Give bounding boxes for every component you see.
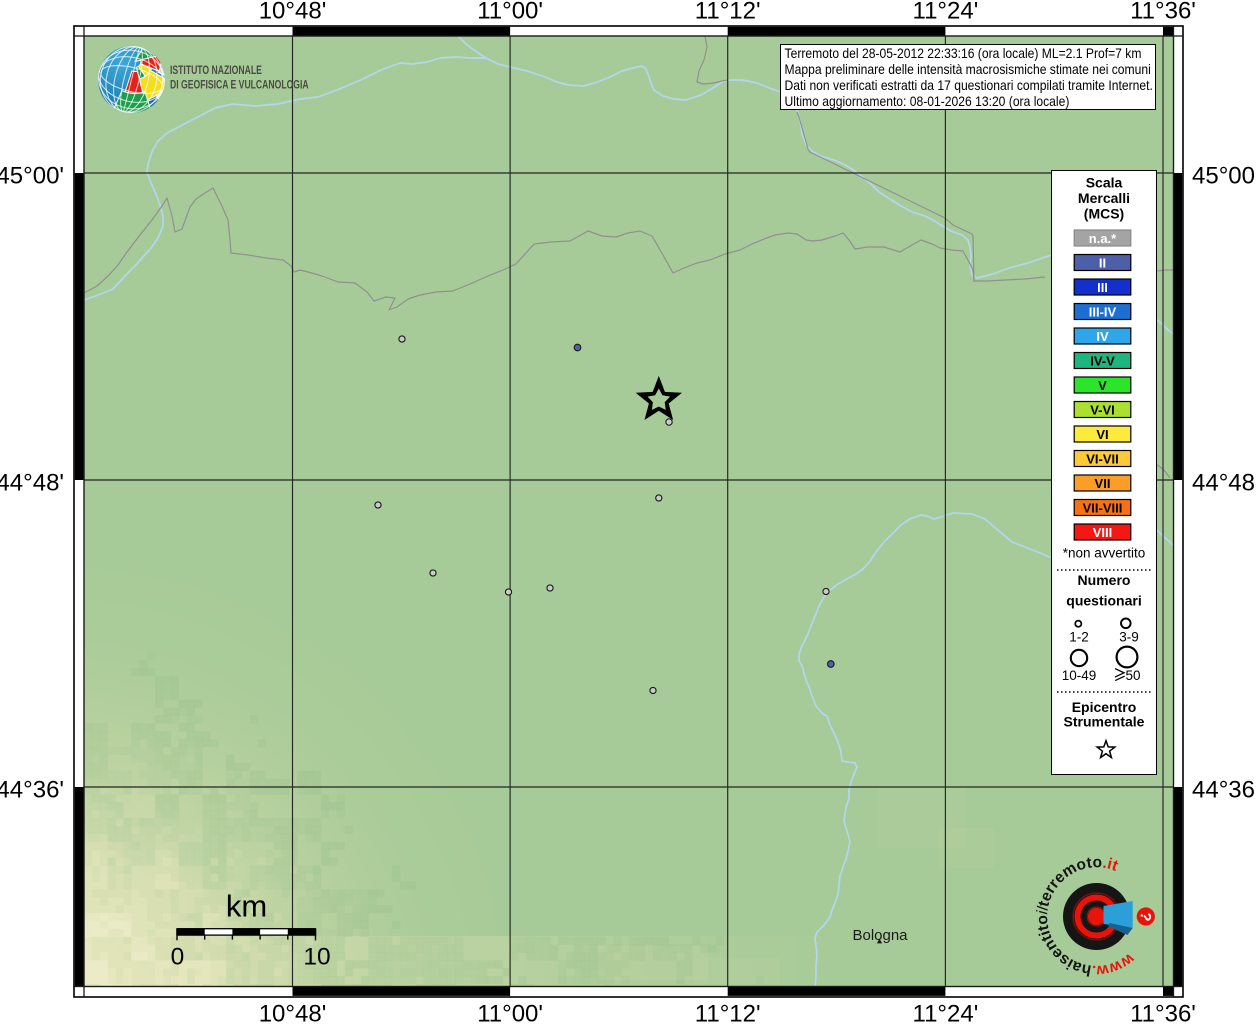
svg-text:(MCS): (MCS) bbox=[1084, 206, 1124, 222]
svg-text:VIII: VIII bbox=[1093, 525, 1113, 540]
svg-text:10-49: 10-49 bbox=[1062, 668, 1097, 683]
svg-text:11°12': 11°12' bbox=[695, 1001, 761, 1024]
svg-text:10°48': 10°48' bbox=[259, 0, 327, 25]
svg-text:11°24': 11°24' bbox=[913, 0, 979, 25]
svg-text:11°36': 11°36' bbox=[1130, 0, 1196, 25]
svg-text:II: II bbox=[1099, 255, 1106, 270]
svg-text:44°36': 44°36' bbox=[0, 777, 64, 804]
svg-text:Scala: Scala bbox=[1086, 175, 1123, 191]
svg-text:1-2: 1-2 bbox=[1069, 630, 1089, 645]
svg-text:IV-V: IV-V bbox=[1090, 353, 1115, 368]
svg-text:VI-VII: VI-VII bbox=[1086, 451, 1119, 466]
svg-text:Numero: Numero bbox=[1078, 572, 1131, 588]
svg-text:11°00': 11°00' bbox=[477, 0, 543, 25]
svg-text:44°48': 44°48' bbox=[1192, 470, 1256, 497]
svg-text:10: 10 bbox=[303, 944, 330, 971]
svg-text:45°00': 45°00' bbox=[0, 163, 64, 190]
svg-text:DI GEOFISICA E VULCANOLOGIA: DI GEOFISICA E VULCANOLOGIA bbox=[170, 80, 309, 93]
svg-text:0: 0 bbox=[171, 944, 185, 971]
svg-text:11°36': 11°36' bbox=[1130, 1001, 1196, 1024]
svg-text:km: km bbox=[226, 889, 267, 924]
svg-text:11°24': 11°24' bbox=[913, 1001, 979, 1024]
svg-text:11°12': 11°12' bbox=[695, 0, 761, 25]
svg-text:III-IV: III-IV bbox=[1089, 304, 1117, 319]
svg-text:*non avvertito: *non avvertito bbox=[1063, 546, 1146, 561]
svg-text:ISTITUTO NAZIONALE: ISTITUTO NAZIONALE bbox=[170, 65, 262, 78]
svg-text:n.a.*: n.a.* bbox=[1089, 231, 1117, 246]
svg-text:Mercalli: Mercalli bbox=[1078, 190, 1130, 206]
svg-text:10°48': 10°48' bbox=[259, 1001, 327, 1024]
svg-text:Strumentale: Strumentale bbox=[1064, 714, 1145, 730]
svg-text:V-VI: V-VI bbox=[1090, 402, 1115, 417]
svg-text:3-9: 3-9 bbox=[1119, 630, 1139, 645]
svg-text:44°36': 44°36' bbox=[1192, 777, 1256, 804]
svg-text:VII-VIII: VII-VIII bbox=[1083, 500, 1123, 515]
svg-text:11°00': 11°00' bbox=[477, 1001, 543, 1024]
svg-text:45°00': 45°00' bbox=[1192, 163, 1256, 190]
svg-text:VI: VI bbox=[1096, 427, 1108, 442]
svg-text:50: 50 bbox=[1125, 668, 1140, 683]
svg-text:V: V bbox=[1098, 378, 1107, 393]
svg-text:III: III bbox=[1097, 280, 1108, 295]
svg-text:questionari: questionari bbox=[1066, 593, 1141, 609]
svg-text:44°48': 44°48' bbox=[0, 470, 64, 497]
svg-text:IV: IV bbox=[1096, 329, 1109, 344]
svg-text:VII: VII bbox=[1095, 476, 1111, 491]
